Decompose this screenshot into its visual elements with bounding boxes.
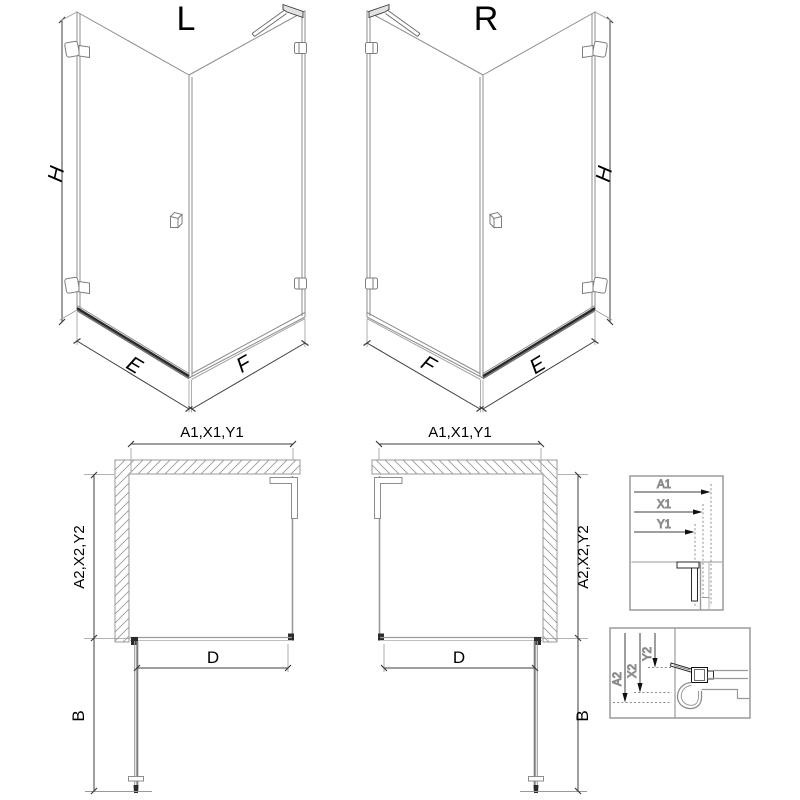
detail-box-vertical-dims: A2 X2 Y2 [610,628,750,718]
plan-dim-inner-left: D [207,648,219,667]
dim-label-door-width-left: E [122,352,147,379]
detail-dim-a2: A2 [612,672,624,686]
plan-dim-side-right: A2,X2,Y2 [575,525,592,588]
plan-dim-door-open-left: B [69,710,88,721]
detail-box-horizontal-dims: A1 X1 Y1 [630,476,723,610]
technical-drawing-sheet: L H E F R H E F A1,X1,Y1 A2,X2,Y2 B D A1… [0,0,800,800]
dim-label-door-width-right: E [526,351,551,378]
plan-dim-side-left: A2,X2,Y2 [71,525,88,588]
detail-dim-a1: A1 [657,479,671,491]
dim-label-height-left: H [44,163,70,183]
variant-label-right: R [474,0,499,38]
plan-dim-inner-right: D [453,648,465,667]
variant-label-left: L [177,0,196,38]
shower-enclosure-spec-drawing: L H E F R H E F A1,X1,Y1 A2,X2,Y2 B D A1… [0,0,800,800]
plan-view-left: A1,X1,Y1 A2,X2,Y2 B D [69,424,300,794]
detail-dim-y1: Y1 [657,519,671,531]
detail-dim-y2: Y2 [642,647,654,661]
dim-label-height-right: H [592,163,618,183]
detail-dim-x2: X2 [627,664,639,678]
detail-dim-x1: X1 [657,499,671,511]
plan-view-right: A1,X1,Y1 A2,X2,Y2 B D [372,424,592,794]
plan-dim-door-open-right: B [573,710,592,721]
plan-dim-top-right: A1,X1,Y1 [428,424,491,441]
iso-view-left: L H E F [44,0,309,413]
iso-view-right: R H E F [364,0,618,413]
plan-dim-top-left: A1,X1,Y1 [180,424,243,441]
